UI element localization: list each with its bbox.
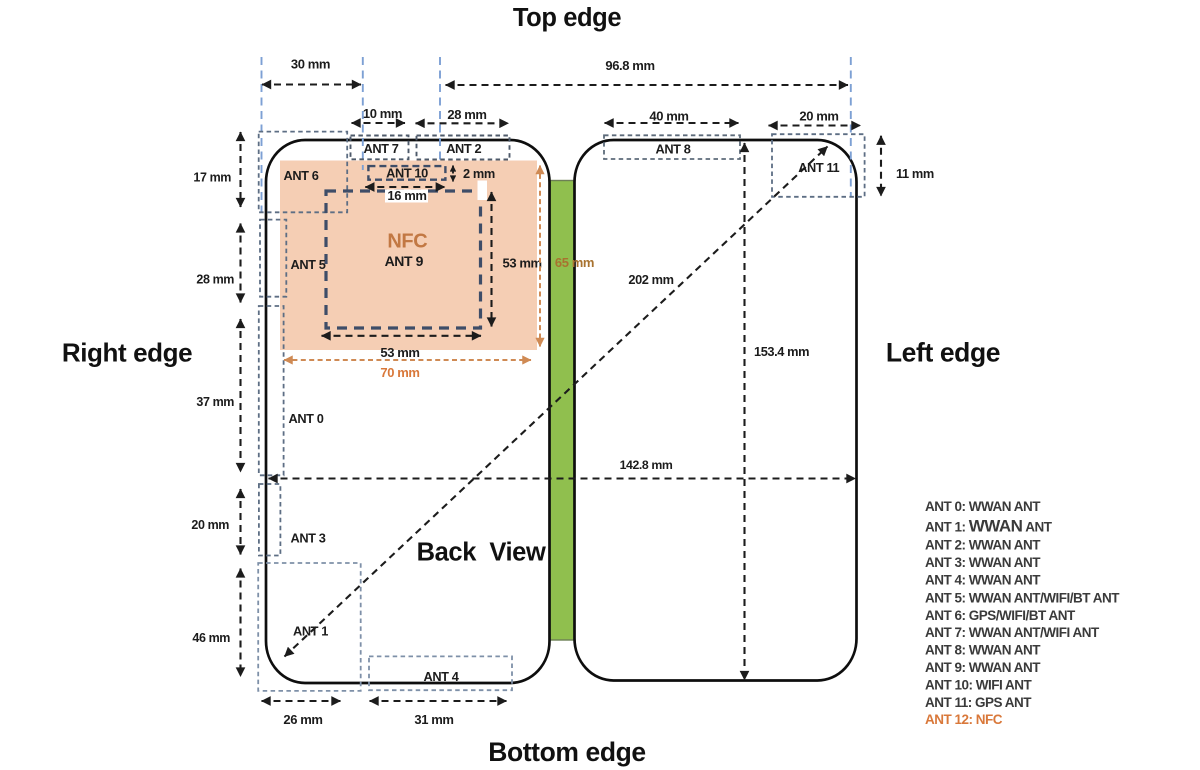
svg-text:ANT 2: ANT 2	[446, 141, 481, 156]
svg-text:70 mm: 70 mm	[380, 365, 419, 380]
svg-text:ANT 5: ANT 5	[291, 257, 326, 272]
svg-text:17 mm: 17 mm	[193, 171, 231, 185]
svg-text:53 mm: 53 mm	[380, 345, 419, 360]
svg-text:153.4 mm: 153.4 mm	[754, 344, 809, 359]
svg-text:53 mm: 53 mm	[503, 256, 542, 271]
svg-text:Bottom edge: Bottom edge	[488, 737, 646, 767]
svg-text:ANT 11: ANT 11	[798, 160, 839, 175]
svg-text:37 mm: 37 mm	[196, 395, 234, 409]
svg-text:NFC: NFC	[387, 231, 427, 253]
svg-text:Left edge: Left edge	[886, 338, 1000, 368]
svg-text:ANT 8: WWAN ANT: ANT 8: WWAN ANT	[925, 642, 1041, 657]
svg-text:ANT 2: WWAN ANT: ANT 2: WWAN ANT	[925, 537, 1041, 552]
svg-text:142.8 mm: 142.8 mm	[620, 458, 673, 472]
svg-text:ANT 10: WIFI ANT: ANT 10: WIFI ANT	[925, 678, 1032, 693]
svg-text:ANT 4: WWAN ANT: ANT 4: WWAN ANT	[925, 573, 1041, 588]
svg-text:20 mm: 20 mm	[799, 109, 838, 124]
svg-text:ANT 6: GPS/WIFI/BT ANT: ANT 6: GPS/WIFI/BT ANT	[925, 608, 1076, 623]
svg-text:ANT 1: ANT 1	[293, 624, 328, 639]
svg-text:202 mm: 202 mm	[628, 272, 673, 287]
svg-text:ANT 7: WWAN ANT/WIFI ANT: ANT 7: WWAN ANT/WIFI ANT	[925, 625, 1100, 640]
svg-text:2 mm: 2 mm	[463, 166, 495, 181]
svg-text:ANT 0: WWAN ANT: ANT 0: WWAN ANT	[925, 499, 1041, 514]
svg-text:ANT 3: ANT 3	[291, 531, 326, 546]
svg-text:40 mm: 40 mm	[649, 109, 688, 124]
svg-text:ANT 4: ANT 4	[424, 669, 460, 684]
svg-text:30 mm: 30 mm	[291, 57, 330, 72]
svg-text:46 mm: 46 mm	[192, 631, 230, 645]
svg-text:16 mm: 16 mm	[387, 188, 426, 203]
svg-text:26 mm: 26 mm	[283, 712, 322, 727]
svg-text:ANT 11: GPS ANT: ANT 11: GPS ANT	[925, 695, 1032, 710]
svg-text:ANT 0: ANT 0	[289, 411, 324, 426]
svg-text:11 mm: 11 mm	[896, 166, 934, 181]
svg-text:65 mm: 65 mm	[555, 255, 594, 270]
svg-text:Back View: Back View	[417, 539, 546, 567]
svg-text:ANT 10: ANT 10	[386, 166, 428, 181]
svg-text:20 mm: 20 mm	[191, 518, 229, 532]
svg-text:ANT 9: ANT 9	[385, 253, 424, 269]
svg-text:ANT 6: ANT 6	[284, 168, 319, 183]
svg-text:ANT 7: ANT 7	[364, 141, 399, 156]
svg-text:Top edge: Top edge	[513, 4, 621, 32]
svg-text:31 mm: 31 mm	[414, 712, 453, 727]
svg-text:Right edge: Right edge	[62, 338, 192, 368]
svg-text:ANT 8: ANT 8	[656, 142, 691, 157]
svg-text:96.8 mm: 96.8 mm	[605, 58, 654, 73]
svg-text:28 mm: 28 mm	[196, 273, 234, 287]
svg-text:ANT 1: WWAN ANT: ANT 1: WWAN ANT	[925, 517, 1053, 536]
svg-text:ANT 12: NFC: ANT 12: NFC	[925, 712, 1003, 727]
svg-text:10 mm: 10 mm	[363, 106, 402, 121]
svg-text:ANT 9: WWAN ANT: ANT 9: WWAN ANT	[925, 660, 1041, 675]
svg-text:ANT 3: WWAN ANT: ANT 3: WWAN ANT	[925, 555, 1041, 570]
svg-text:28 mm: 28 mm	[447, 107, 486, 122]
svg-text:ANT 5: WWAN ANT/WIFI/BT ANT: ANT 5: WWAN ANT/WIFI/BT ANT	[925, 590, 1120, 605]
